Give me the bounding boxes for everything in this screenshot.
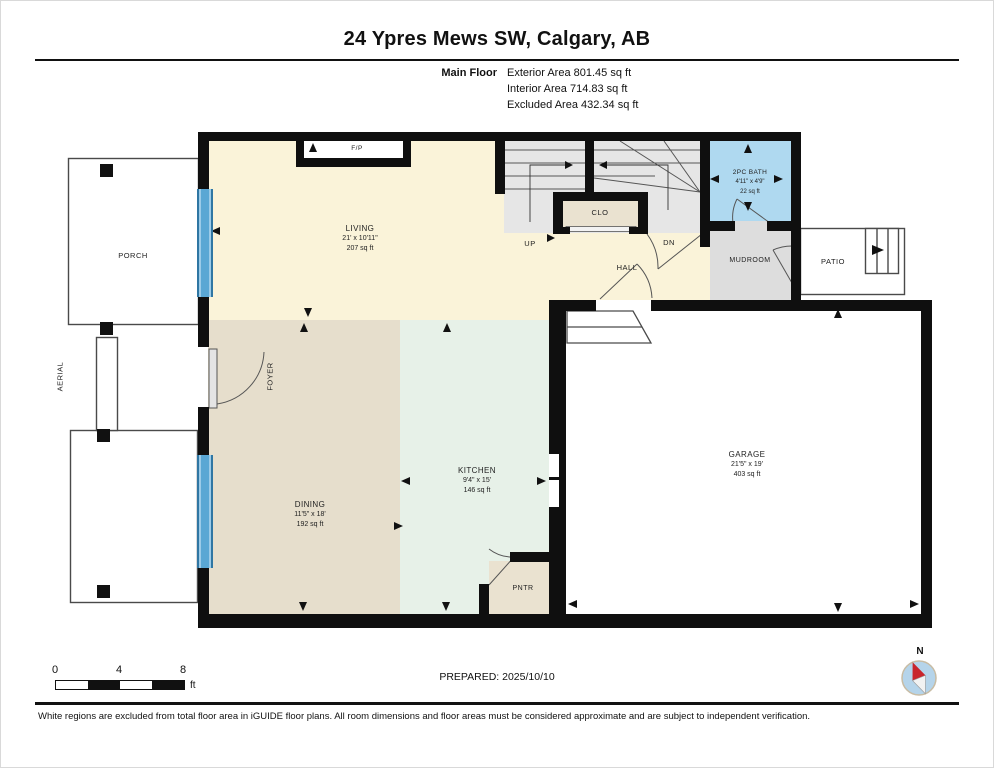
wall: [495, 132, 505, 194]
fireplace-label: F/P: [327, 145, 387, 152]
closet-label: CLO: [570, 208, 630, 217]
wall: [700, 233, 710, 247]
wall: [629, 227, 648, 234]
patio-label: PATIO: [793, 257, 873, 266]
wall: [585, 132, 594, 194]
garage-entry-steps: [567, 311, 651, 343]
living-window: [197, 189, 213, 297]
aerial-label: AERIAL: [56, 349, 65, 405]
porch-outline: [69, 159, 199, 603]
dining-window: [197, 455, 213, 568]
compass-icon: [898, 657, 942, 701]
wall: [700, 221, 735, 231]
bath-door-leaf: [737, 199, 770, 223]
pantry-wall: [479, 584, 489, 616]
wall: [921, 300, 932, 628]
dining-room-label: DINING 11'5" x 18' 192 sq ft: [240, 500, 380, 529]
down-run-arrow: [599, 161, 607, 169]
living-room-label: LIVING 21' x 10'11" 207 sq ft: [280, 224, 440, 253]
bathroom-label: 2PC BATH 4'11" x 4'9" 22 sq ft: [700, 168, 800, 197]
stairs-down-label: DN: [649, 238, 689, 247]
kitchen-label: KITCHEN 9'4" x 15' 146 sq ft: [417, 466, 537, 495]
front-door-arc: [217, 352, 264, 404]
mudroom-label: MUDROOM: [705, 257, 795, 264]
garage-label: GARAGE 21'5" x 19' 403 sq ft: [687, 450, 807, 479]
wall-niche: [549, 454, 559, 477]
porch-label: PORCH: [93, 251, 173, 260]
scale-bar: [55, 680, 185, 690]
foyer-label: FOYER: [266, 349, 275, 405]
wall-niche: [549, 480, 559, 507]
wall: [553, 227, 570, 234]
compass-north-label: N: [910, 646, 930, 657]
closet-slider: [566, 227, 636, 232]
wall: [198, 132, 209, 189]
pantry-label: PNTR: [493, 585, 553, 592]
floor-plan-page: 24 Ypres Mews SW, Calgary, AB Main Floor…: [0, 0, 994, 768]
bath-door-arc: [733, 199, 737, 223]
up-run-arrow: [565, 161, 573, 169]
front-door-leaf: [209, 349, 217, 408]
wall: [553, 192, 648, 201]
fireplace-wall: [296, 158, 411, 167]
wall: [198, 407, 209, 457]
pantry-wall: [510, 552, 550, 562]
wall: [198, 614, 932, 628]
wall: [198, 297, 209, 347]
stairs-up-label: UP: [510, 239, 550, 248]
plan-linework: [0, 0, 994, 768]
hall-label: HALL: [587, 263, 667, 272]
